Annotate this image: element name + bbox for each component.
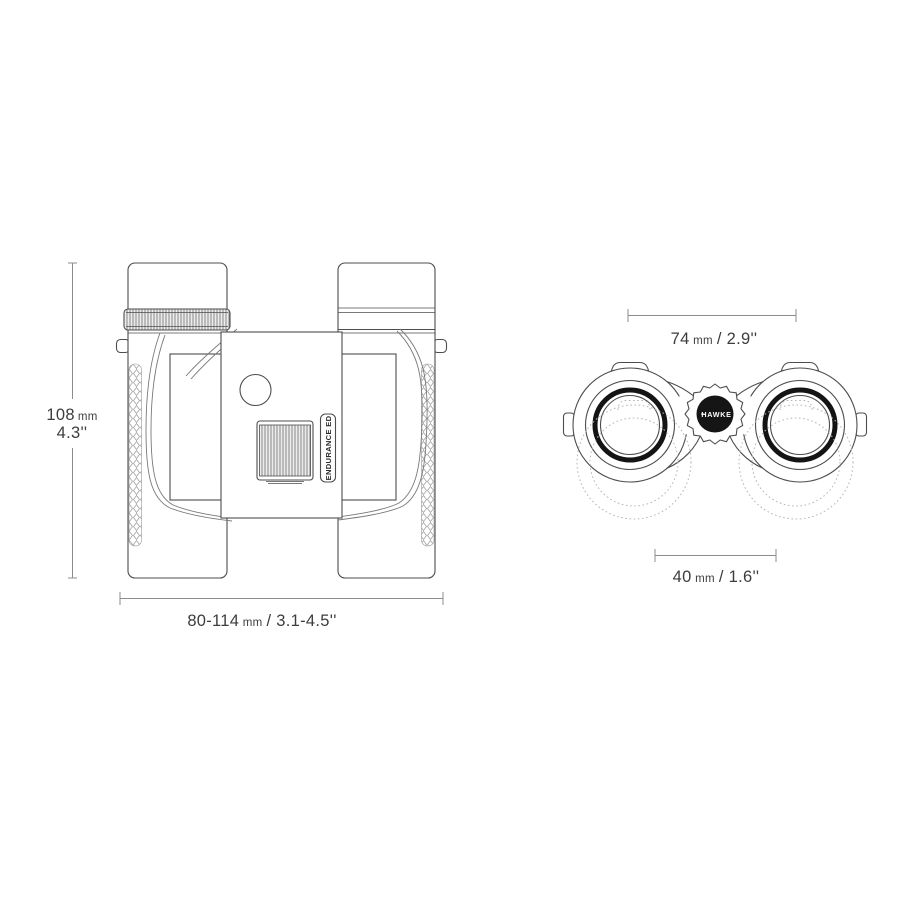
front-view-diagram: HAWKE 74mm/ 2.9'' (564, 309, 867, 586)
objective-dimension: 40mm/ 1.6'' (655, 549, 776, 586)
folded-width-dimension: 74mm/ 2.9'' (628, 309, 796, 348)
hawke-logo-text: HAWKE (701, 410, 731, 419)
hawke-logo: HAWKE (697, 396, 734, 433)
endurance-ed-badge: ENDURANCE ED (321, 414, 336, 482)
left-grip-texture (129, 364, 142, 546)
diopter-ring (124, 309, 230, 333)
width-dimension: 80-114mm/ 3.1-4.5'' (120, 592, 443, 630)
right-grip-texture (422, 364, 435, 546)
focus-wheel (257, 421, 313, 484)
binocular-dimensions-diagram: ENDURANCE ED 108mm 4.3'' 80-114mm/ 3.1-4… (0, 0, 900, 900)
endurance-ed-label: ENDURANCE ED (324, 415, 333, 480)
height-dimension: 108mm 4.3'' (46, 263, 97, 578)
folded-width-label: 74mm/ 2.9'' (671, 330, 758, 348)
top-view-diagram: ENDURANCE ED 108mm 4.3'' 80-114mm/ 3.1-4… (46, 263, 446, 630)
hinge-cap (240, 375, 271, 406)
height-dimension-inches: 4.3'' (57, 424, 88, 442)
height-dimension-label: 108mm (46, 406, 97, 424)
objective-dimension-label: 40mm/ 1.6'' (673, 568, 760, 586)
width-dimension-label: 80-114mm/ 3.1-4.5'' (187, 612, 336, 630)
